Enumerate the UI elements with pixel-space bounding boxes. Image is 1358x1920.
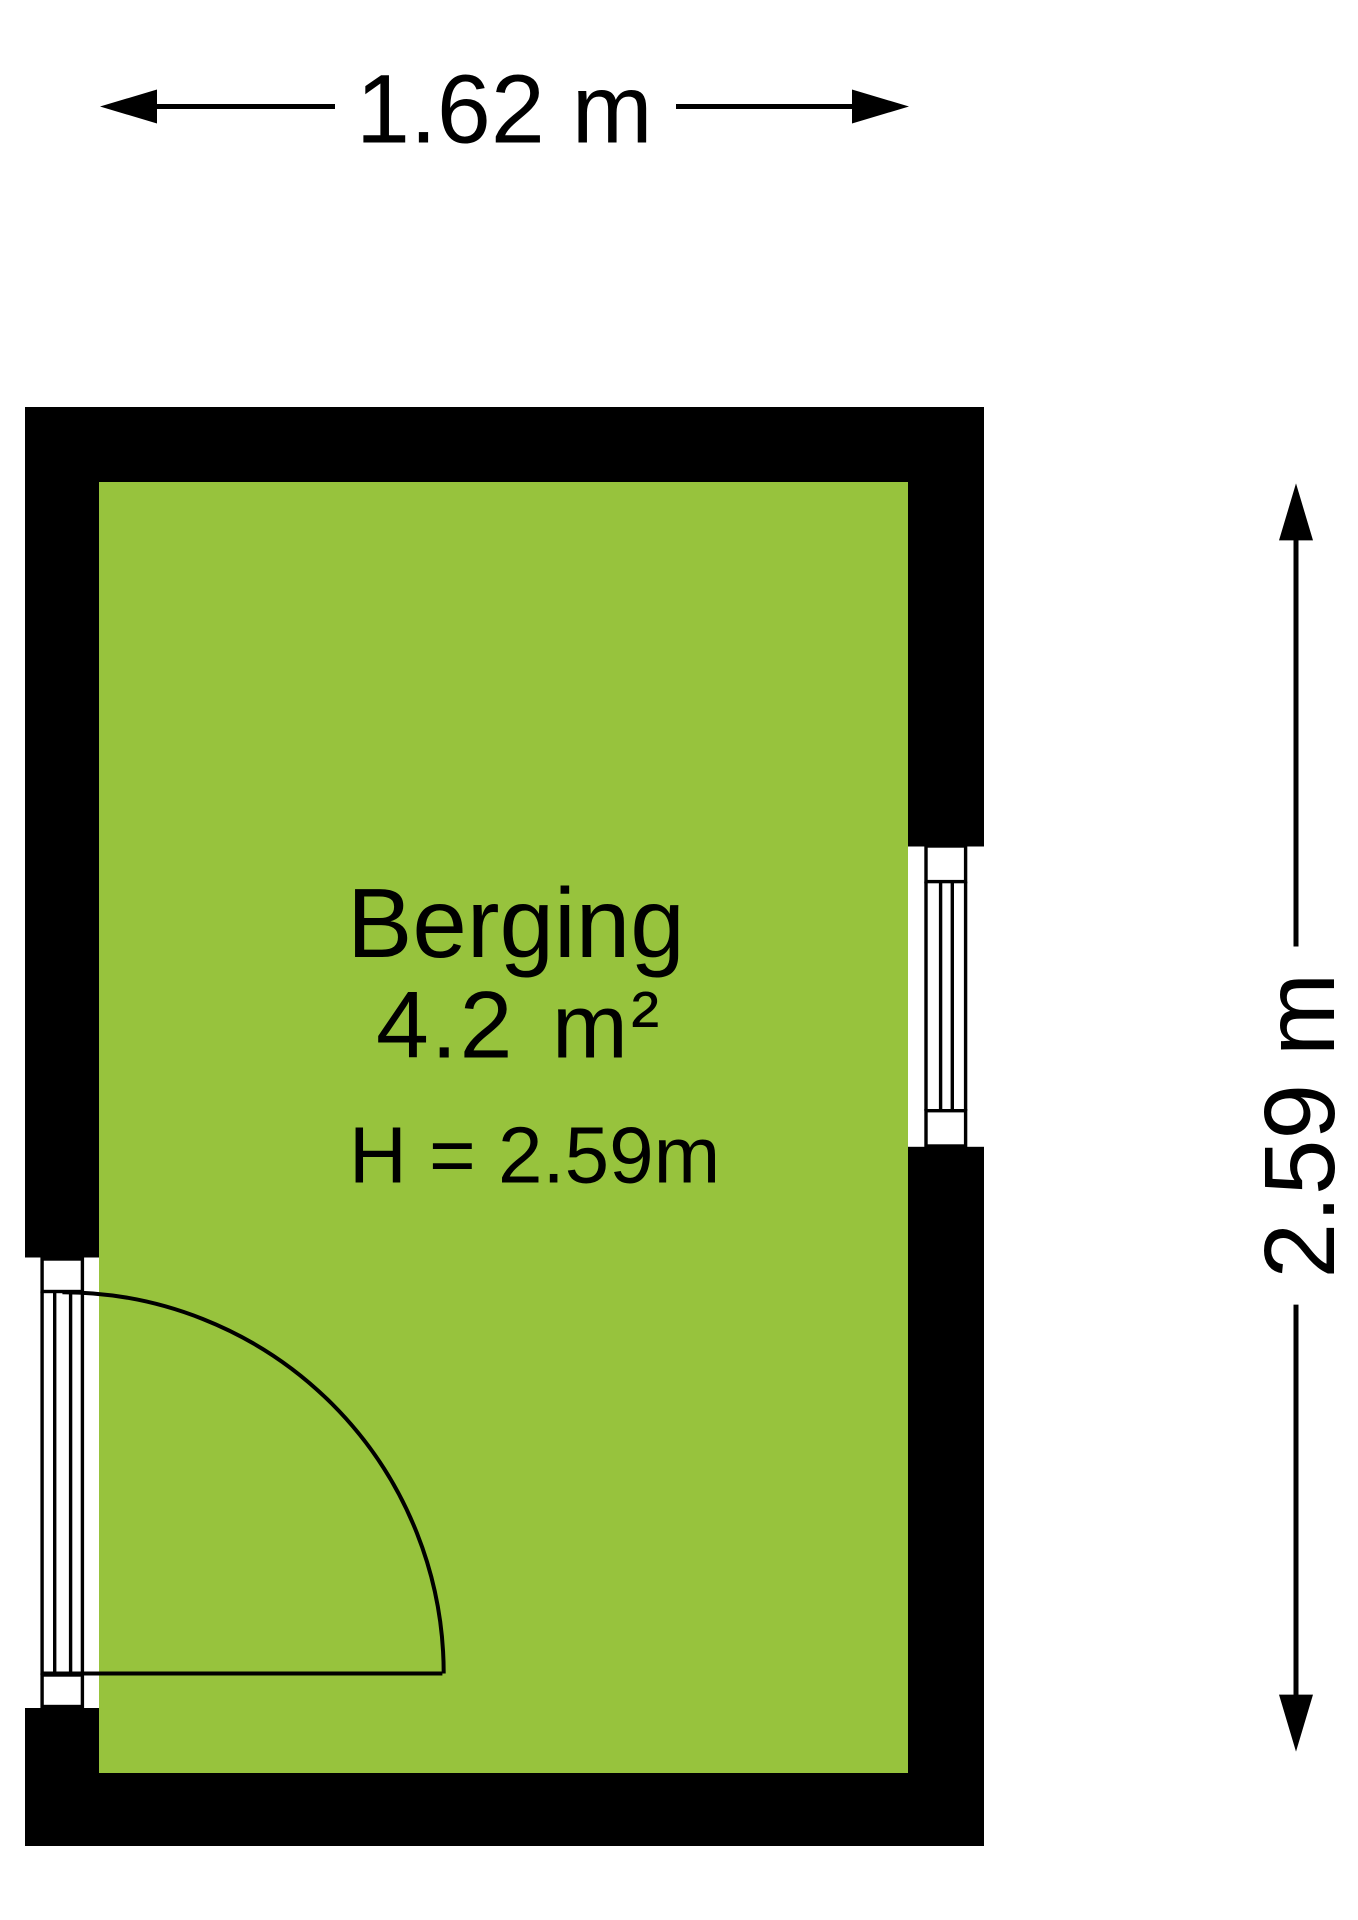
svg-text:4.2: 4.2 <box>376 973 515 1079</box>
svg-text:²: ² <box>631 975 659 1070</box>
svg-text:2.59 m: 2.59 m <box>1244 973 1356 1279</box>
svg-text:m: m <box>552 977 628 1078</box>
svg-text:H = 2.59m: H = 2.59m <box>349 1111 720 1200</box>
svg-text:1.62 m: 1.62 m <box>356 55 653 164</box>
svg-text:Berging: Berging <box>347 868 685 978</box>
